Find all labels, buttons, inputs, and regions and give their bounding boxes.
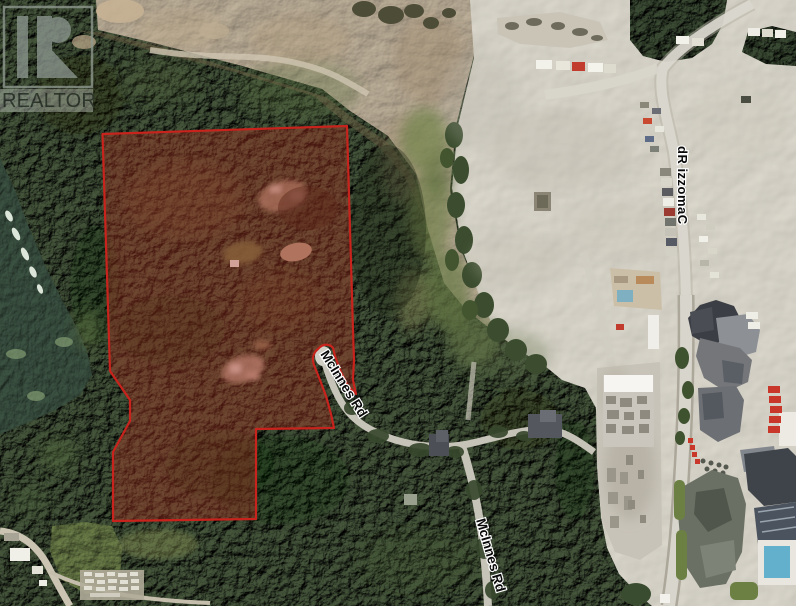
svg-text:dR izzomaC: dR izzomaC bbox=[675, 146, 690, 225]
svg-text:REALTOR: REALTOR bbox=[2, 90, 96, 112]
